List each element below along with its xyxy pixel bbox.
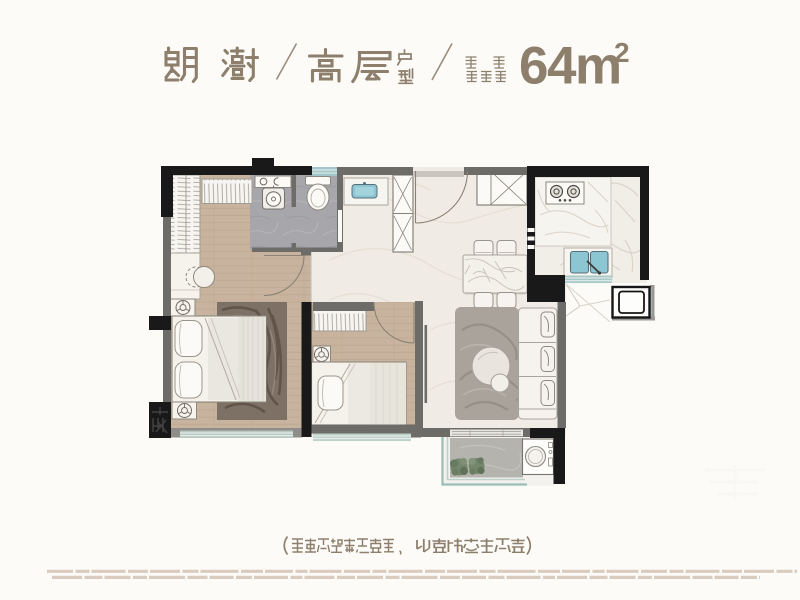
svg-text:64m: 64m	[519, 37, 621, 96]
svg-text:2: 2	[614, 37, 630, 68]
